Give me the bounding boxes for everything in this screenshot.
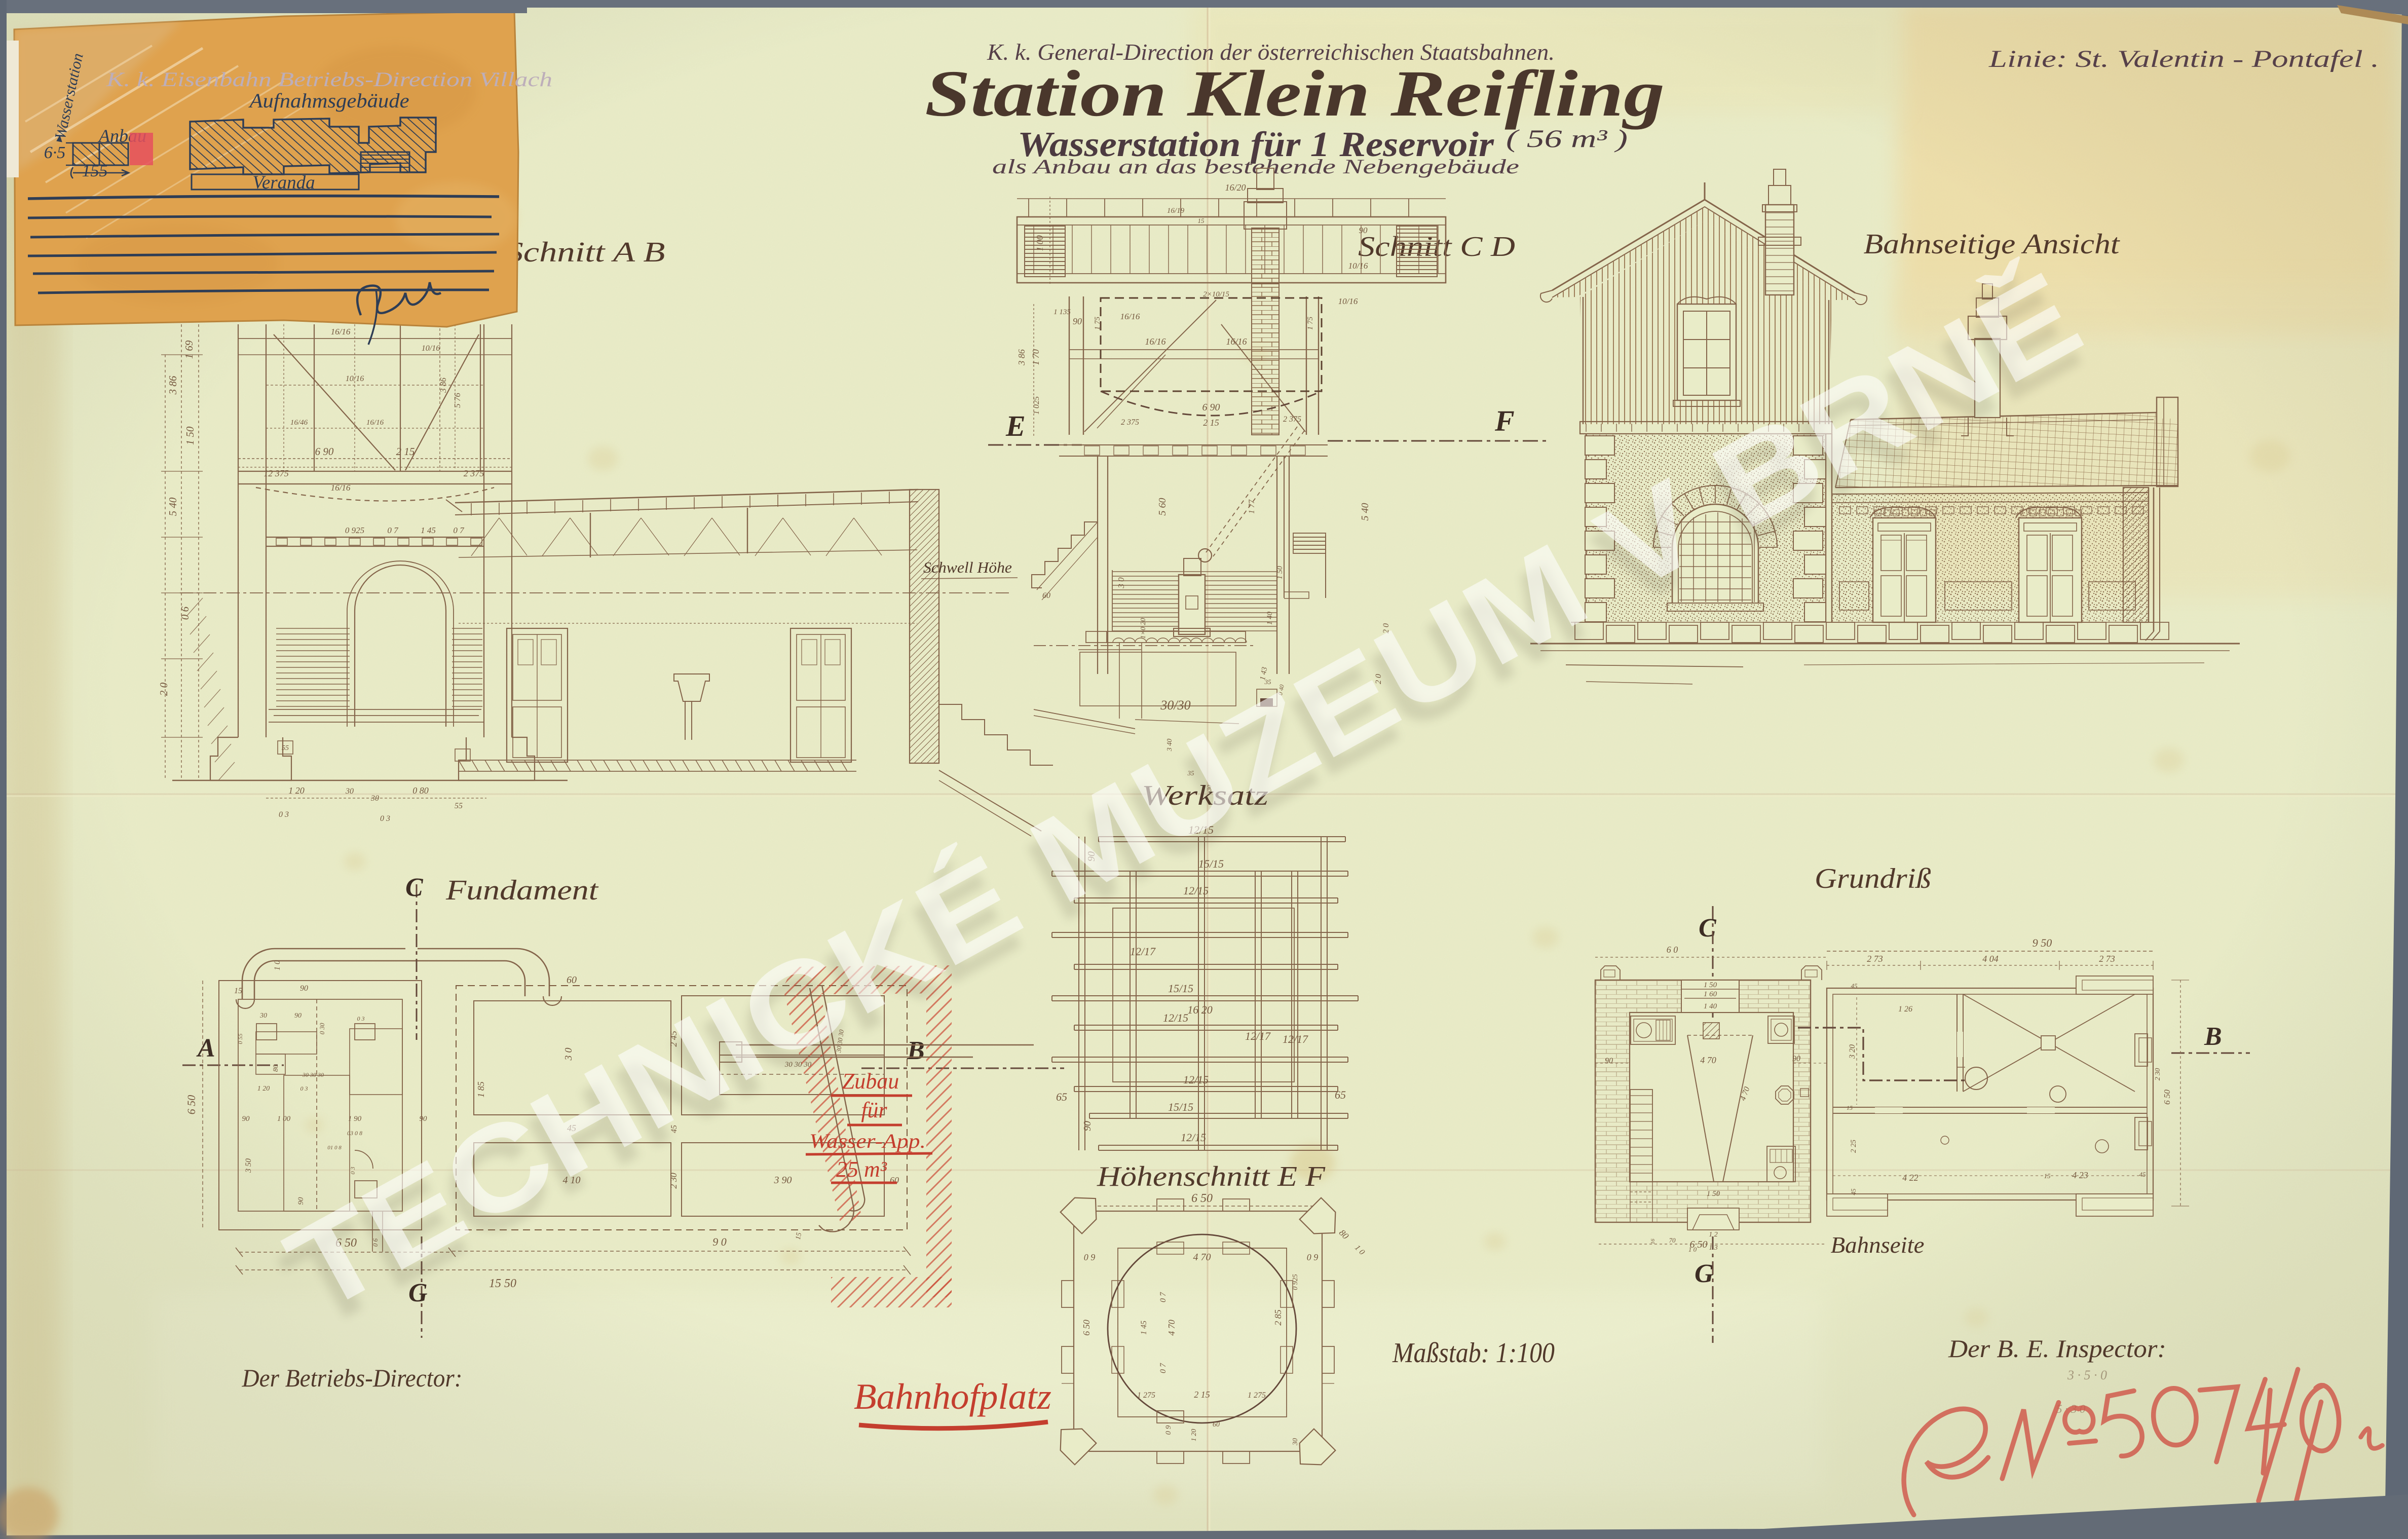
svg-text:Schnitt A B: Schnitt A B bbox=[506, 237, 665, 268]
svg-text:5 40: 5 40 bbox=[167, 497, 179, 516]
svg-text:1 20: 1 20 bbox=[1190, 1429, 1198, 1442]
svg-text:3 86: 3 86 bbox=[167, 376, 179, 395]
svg-text:2 73: 2 73 bbox=[1867, 954, 1883, 964]
svg-text:90: 90 bbox=[1073, 316, 1082, 326]
svg-text:als Anbau an das bestehende Ne: als Anbau an das bestehende Nebengebäude bbox=[992, 155, 1519, 178]
svg-text:3 20: 3 20 bbox=[1848, 1044, 1857, 1059]
svg-text:30: 30 bbox=[1292, 1438, 1299, 1446]
svg-text:1 26: 1 26 bbox=[1898, 1005, 1912, 1014]
svg-text:0 9: 0 9 bbox=[1307, 1252, 1319, 1262]
svg-text:45: 45 bbox=[2139, 1171, 2147, 1178]
svg-text:0 7: 0 7 bbox=[1159, 1363, 1168, 1373]
svg-text:6·5: 6·5 bbox=[44, 143, 66, 162]
svg-text:0 3: 0 3 bbox=[279, 810, 289, 819]
svg-text:0 925: 0 925 bbox=[345, 525, 364, 535]
svg-text:2×10/15: 2×10/15 bbox=[1203, 290, 1229, 298]
svg-text:1 20: 1 20 bbox=[288, 785, 305, 796]
svg-text:0 9: 0 9 bbox=[1164, 1425, 1173, 1435]
svg-text:30 30 30: 30 30 30 bbox=[302, 1071, 324, 1078]
svg-text:90: 90 bbox=[1082, 1121, 1093, 1131]
svg-text:Wasser-App.: Wasser-App. bbox=[809, 1130, 926, 1152]
svg-text:0 6: 0 6 bbox=[179, 606, 191, 620]
svg-text:Höhenschnitt E F: Höhenschnitt E F bbox=[1097, 1161, 1326, 1192]
svg-text:03 0 8: 03 0 8 bbox=[347, 1130, 362, 1137]
svg-text:90: 90 bbox=[300, 984, 308, 993]
svg-text:16/16: 16/16 bbox=[366, 419, 384, 427]
svg-text:0 80: 0 80 bbox=[412, 785, 429, 796]
svg-text:10/16: 10/16 bbox=[422, 344, 440, 353]
svg-text:5 60: 5 60 bbox=[1157, 498, 1168, 516]
svg-text:0 3: 0 3 bbox=[300, 1085, 308, 1092]
svg-text:12 375: 12 375 bbox=[264, 468, 289, 478]
svg-text:4 23: 4 23 bbox=[2072, 1170, 2088, 1180]
svg-text:12/15: 12/15 bbox=[1163, 1011, 1188, 1024]
svg-text:90: 90 bbox=[1359, 226, 1368, 235]
svg-text:Station Klein Reifling: Station Klein Reifling bbox=[925, 57, 1665, 130]
svg-text:12/17: 12/17 bbox=[1245, 1030, 1271, 1042]
svg-text:16/20: 16/20 bbox=[1225, 182, 1246, 193]
svg-text:1 75: 1 75 bbox=[1306, 316, 1314, 330]
svg-text:1 2: 1 2 bbox=[1709, 1231, 1718, 1238]
svg-text:16: 16 bbox=[1650, 1238, 1656, 1245]
svg-text:C: C bbox=[1699, 914, 1717, 943]
svg-text:60: 60 bbox=[1213, 1421, 1220, 1429]
svg-text:3 50: 3 50 bbox=[244, 1158, 253, 1173]
svg-text:Schwell Höhe: Schwell Höhe bbox=[923, 558, 1012, 576]
svg-text:1 45: 1 45 bbox=[421, 525, 436, 535]
svg-text:A: A bbox=[196, 1034, 215, 1063]
svg-text:90: 90 bbox=[420, 1115, 428, 1123]
svg-text:30: 30 bbox=[259, 1012, 267, 1020]
svg-text:15: 15 bbox=[795, 1232, 803, 1240]
svg-text:16/16: 16/16 bbox=[1226, 336, 1247, 347]
svg-text:16/16: 16/16 bbox=[1145, 336, 1165, 347]
svg-text:0 7: 0 7 bbox=[453, 525, 465, 535]
svg-text:1 77: 1 77 bbox=[1248, 499, 1256, 514]
svg-text:6 90: 6 90 bbox=[315, 445, 334, 458]
svg-text:2 73: 2 73 bbox=[2099, 954, 2115, 964]
svg-text:6 50: 6 50 bbox=[1081, 1320, 1092, 1336]
svg-text:Der B. E. Inspector:: Der B. E. Inspector: bbox=[1948, 1334, 2166, 1363]
svg-text:6 90: 6 90 bbox=[1202, 402, 1220, 413]
svg-text:3 · 5 · 0: 3 · 5 · 0 bbox=[2067, 1368, 2107, 1382]
svg-text:6 0: 6 0 bbox=[1667, 945, 1678, 955]
svg-text:1 3: 1 3 bbox=[1709, 1244, 1718, 1252]
svg-text:30: 30 bbox=[370, 794, 379, 803]
svg-text:70: 70 bbox=[1669, 1236, 1676, 1244]
svg-text:2 30: 2 30 bbox=[2154, 1068, 2162, 1081]
svg-text:2 15: 2 15 bbox=[1203, 418, 1219, 428]
svg-text:für: für bbox=[861, 1098, 887, 1122]
svg-text:15: 15 bbox=[1847, 1104, 1853, 1111]
svg-text:0 3: 0 3 bbox=[357, 1015, 365, 1022]
svg-text:3 86: 3 86 bbox=[1017, 349, 1027, 366]
svg-text:2 375: 2 375 bbox=[464, 468, 484, 478]
svg-text:30: 30 bbox=[345, 787, 354, 796]
svg-text:15: 15 bbox=[1198, 217, 1205, 224]
svg-text:12/17: 12/17 bbox=[1130, 945, 1156, 958]
svg-text:16/16: 16/16 bbox=[331, 483, 351, 493]
svg-text:1 275: 1 275 bbox=[1248, 1391, 1266, 1400]
svg-text:1 69: 1 69 bbox=[183, 340, 195, 359]
svg-text:1 025: 1 025 bbox=[1032, 396, 1041, 415]
svg-text:F: F bbox=[1494, 404, 1515, 437]
svg-text:6 50: 6 50 bbox=[1690, 1239, 1708, 1250]
svg-text:6 50: 6 50 bbox=[185, 1095, 198, 1115]
svg-text:45: 45 bbox=[1850, 1188, 1857, 1195]
svg-text:0 7: 0 7 bbox=[387, 525, 399, 535]
svg-text:15: 15 bbox=[234, 987, 242, 995]
svg-text:2 15: 2 15 bbox=[1194, 1390, 1210, 1400]
svg-text:60: 60 bbox=[567, 974, 577, 986]
svg-text:10/16: 10/16 bbox=[1338, 296, 1358, 306]
svg-text:1 40: 1 40 bbox=[1266, 611, 1274, 625]
svg-text:65: 65 bbox=[1056, 1091, 1067, 1103]
svg-text:60: 60 bbox=[1042, 591, 1050, 600]
svg-text:16/16: 16/16 bbox=[331, 327, 351, 336]
svg-text:( 56 m³ ): ( 56 m³ ) bbox=[1506, 124, 1628, 153]
svg-text:2 15: 2 15 bbox=[396, 445, 415, 458]
svg-text:16/16: 16/16 bbox=[1120, 312, 1140, 321]
svg-text:2 0: 2 0 bbox=[158, 682, 170, 696]
svg-text:1 90: 1 90 bbox=[348, 1115, 362, 1123]
svg-text:30/30: 30/30 bbox=[1160, 698, 1190, 712]
svg-text:1 85: 1 85 bbox=[476, 1081, 486, 1098]
svg-text:12/15: 12/15 bbox=[1183, 884, 1209, 897]
svg-text:1 45: 1 45 bbox=[1140, 1321, 1148, 1335]
svg-text:80: 80 bbox=[272, 1065, 280, 1072]
svg-text:90: 90 bbox=[1792, 1055, 1800, 1063]
svg-text:Aufnahmsgebäude: Aufnahmsgebäude bbox=[248, 89, 409, 112]
svg-text:155: 155 bbox=[82, 162, 108, 180]
svg-text:5 76: 5 76 bbox=[453, 393, 462, 408]
svg-text:2 375: 2 375 bbox=[1283, 415, 1301, 424]
svg-text:Maßstab: 1:100: Maßstab: 1:100 bbox=[1392, 1337, 1555, 1369]
svg-text:1 70: 1 70 bbox=[1031, 349, 1041, 365]
svg-text:2 25: 2 25 bbox=[1850, 1139, 1858, 1153]
svg-text:1 0: 1 0 bbox=[273, 960, 282, 970]
svg-text:0 9: 0 9 bbox=[1084, 1252, 1096, 1262]
svg-text:12/15: 12/15 bbox=[1181, 1131, 1206, 1144]
svg-text:1 275: 1 275 bbox=[1137, 1391, 1155, 1400]
svg-text:1 75: 1 75 bbox=[1094, 316, 1102, 330]
svg-text:1 60: 1 60 bbox=[1704, 990, 1717, 998]
svg-text:3 0: 3 0 bbox=[1116, 577, 1126, 589]
svg-text:55: 55 bbox=[455, 802, 463, 810]
svg-text:Bahnhofplatz: Bahnhofplatz bbox=[854, 1376, 1051, 1417]
svg-text:0 30: 0 30 bbox=[318, 1023, 326, 1034]
svg-text:12/15: 12/15 bbox=[1183, 1073, 1209, 1086]
svg-text:16/19: 16/19 bbox=[1167, 207, 1185, 215]
svg-text:B: B bbox=[907, 1036, 925, 1065]
svg-text:1 20: 1 20 bbox=[257, 1085, 270, 1093]
svg-text:1 40: 1 40 bbox=[1704, 1002, 1717, 1010]
svg-text:G: G bbox=[1695, 1259, 1714, 1288]
svg-text:C: C bbox=[405, 873, 424, 902]
svg-text:15 50: 15 50 bbox=[489, 1277, 516, 1290]
svg-text:3 90: 3 90 bbox=[774, 1175, 792, 1186]
svg-text:0 3: 0 3 bbox=[380, 814, 390, 823]
svg-text:9 50: 9 50 bbox=[2033, 936, 2052, 949]
svg-text:45: 45 bbox=[1851, 982, 1858, 990]
svg-text:10/16: 10/16 bbox=[1348, 261, 1368, 271]
svg-text:K. k. Eisenbahn Betriebs-Dire: K. k. Eisenbahn Betriebs-Direction Villa… bbox=[106, 68, 552, 91]
svg-text:Veranda: Veranda bbox=[252, 172, 315, 193]
svg-text:1×0 20: 1×0 20 bbox=[1140, 618, 1147, 639]
svg-text:65: 65 bbox=[1335, 1088, 1346, 1101]
svg-text:5 40: 5 40 bbox=[1360, 503, 1371, 521]
svg-text:15/15: 15/15 bbox=[1168, 982, 1193, 995]
svg-text:1 50: 1 50 bbox=[1276, 566, 1284, 579]
svg-text:1 50: 1 50 bbox=[1704, 981, 1717, 989]
svg-text:6 50: 6 50 bbox=[1191, 1192, 1213, 1205]
svg-text:E: E bbox=[1005, 409, 1026, 442]
svg-text:Der Betriebs-Director:: Der Betriebs-Director: bbox=[242, 1364, 463, 1392]
svg-text:4 70: 4 70 bbox=[1167, 1320, 1177, 1336]
svg-text:16/46: 16/46 bbox=[290, 419, 308, 427]
svg-text:4 22: 4 22 bbox=[1902, 1173, 1918, 1183]
svg-text:4 70: 4 70 bbox=[1193, 1252, 1211, 1263]
svg-text:Bahnseitige Ansicht: Bahnseitige Ansicht bbox=[1864, 229, 2121, 260]
svg-text:1 00: 1 00 bbox=[277, 1115, 291, 1123]
svg-text:1 50: 1 50 bbox=[184, 426, 196, 445]
svg-text:Linie: St. Valentin - Pontafe: Linie: St. Valentin - Pontafel . bbox=[1988, 46, 2379, 72]
svg-text:Grundriß: Grundriß bbox=[1815, 863, 1931, 894]
svg-text:4 70: 4 70 bbox=[1700, 1055, 1716, 1065]
svg-text:9 0: 9 0 bbox=[712, 1235, 727, 1248]
svg-text:90: 90 bbox=[242, 1115, 250, 1123]
svg-text:2 85: 2 85 bbox=[1273, 1309, 1283, 1326]
svg-text:0 925: 0 925 bbox=[1292, 1274, 1299, 1290]
svg-text:Bahnseite: Bahnseite bbox=[1831, 1232, 1925, 1258]
svg-text:01 0 8: 01 0 8 bbox=[327, 1145, 342, 1151]
svg-text:0 55: 0 55 bbox=[237, 1034, 244, 1044]
svg-text:1 00: 1 00 bbox=[1035, 235, 1045, 251]
svg-text:1 50: 1 50 bbox=[1707, 1190, 1720, 1198]
svg-text:B: B bbox=[2204, 1022, 2222, 1051]
svg-text:25 m³: 25 m³ bbox=[836, 1157, 887, 1182]
svg-text:Fundament: Fundament bbox=[445, 875, 599, 906]
svg-text:1 135: 1 135 bbox=[1053, 308, 1071, 316]
svg-text:4 04: 4 04 bbox=[1982, 954, 1999, 964]
svg-text:0 7: 0 7 bbox=[1159, 1292, 1168, 1302]
svg-text:Zubau: Zubau bbox=[842, 1069, 899, 1094]
svg-text:2 375: 2 375 bbox=[1121, 418, 1139, 427]
svg-text:90: 90 bbox=[1605, 1057, 1613, 1065]
svg-text:12/17: 12/17 bbox=[1283, 1033, 1308, 1045]
svg-text:16 20: 16 20 bbox=[1187, 1003, 1213, 1016]
svg-text:15/15: 15/15 bbox=[1168, 1101, 1193, 1113]
svg-text:2 30: 2 30 bbox=[668, 1173, 679, 1189]
svg-text:90: 90 bbox=[294, 1012, 302, 1020]
svg-text:55: 55 bbox=[282, 744, 289, 752]
svg-text:6 50: 6 50 bbox=[2162, 1090, 2172, 1105]
